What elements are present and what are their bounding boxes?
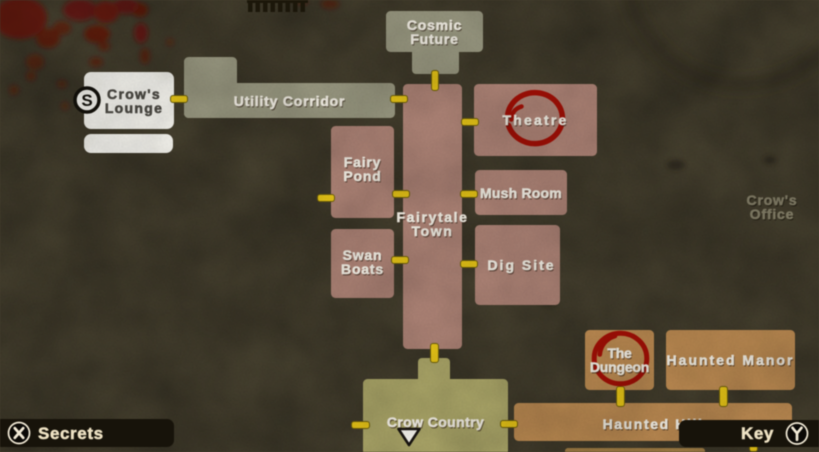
- svg-text:S: S: [81, 91, 92, 110]
